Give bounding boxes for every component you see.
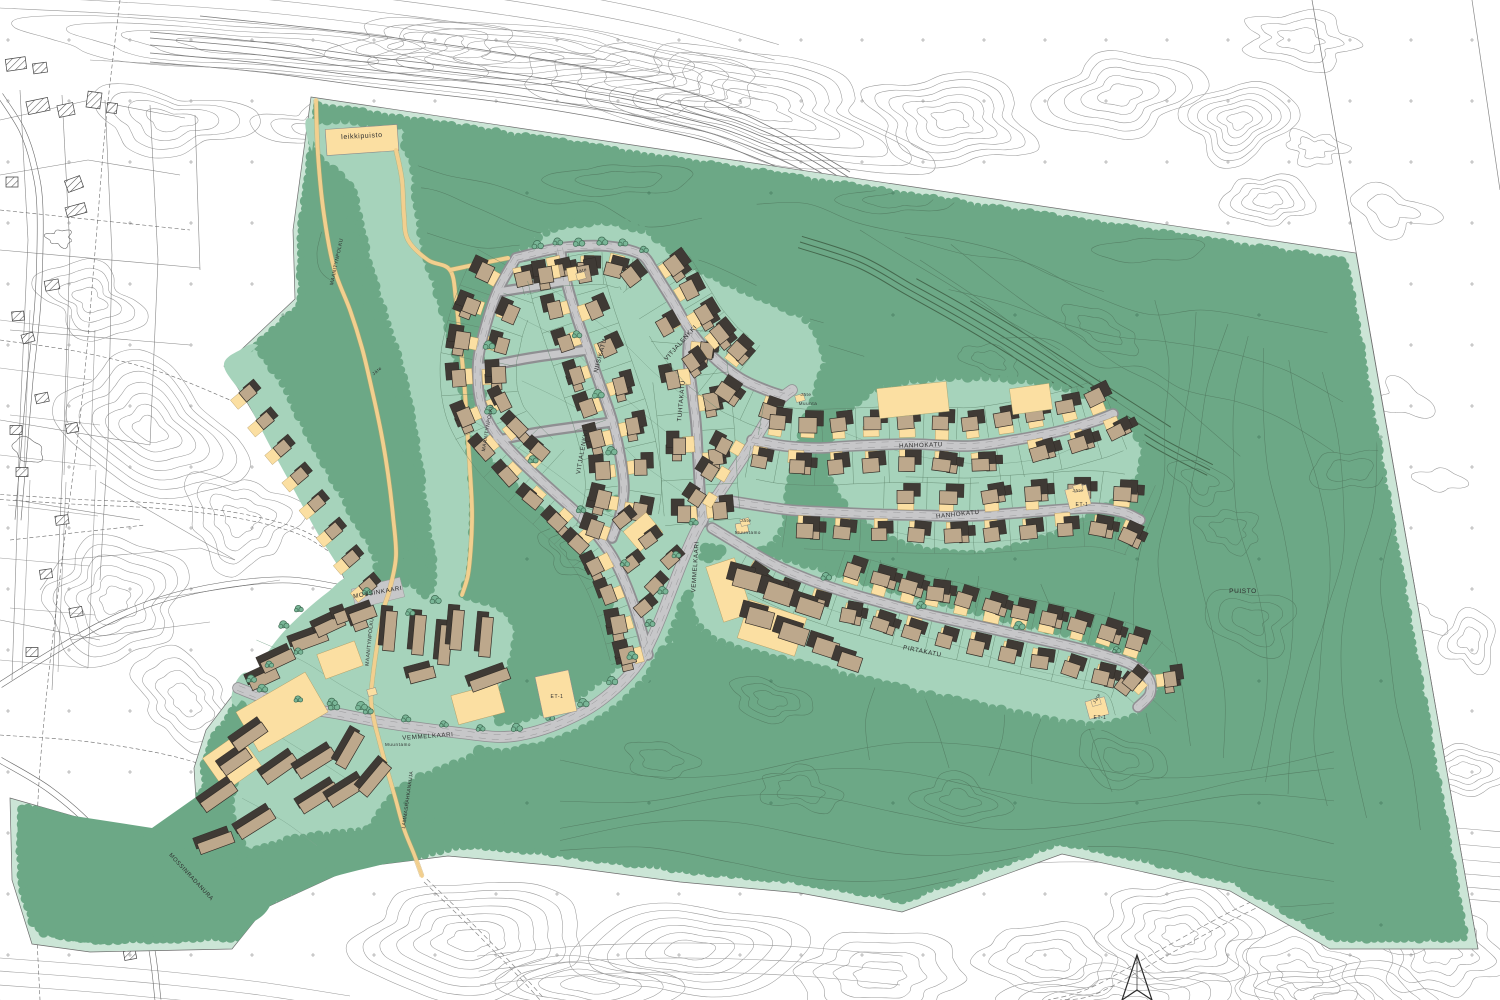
svg-text:Jäte: Jäte xyxy=(1073,488,1084,493)
svg-text:Jäte: Jäte xyxy=(801,392,812,397)
svg-text:ET-1: ET-1 xyxy=(1094,715,1107,721)
svg-text:PUISTO: PUISTO xyxy=(1229,588,1257,595)
svg-text:Muuntamo: Muuntamo xyxy=(385,742,411,747)
svg-text:Jäte: Jäte xyxy=(741,518,752,523)
svg-text:ET-1: ET-1 xyxy=(551,694,564,700)
svg-text:ET-1: ET-1 xyxy=(1076,502,1089,508)
svg-text:Muuntamo: Muuntamo xyxy=(735,530,761,535)
svg-text:Muunta: Muunta xyxy=(799,401,818,406)
